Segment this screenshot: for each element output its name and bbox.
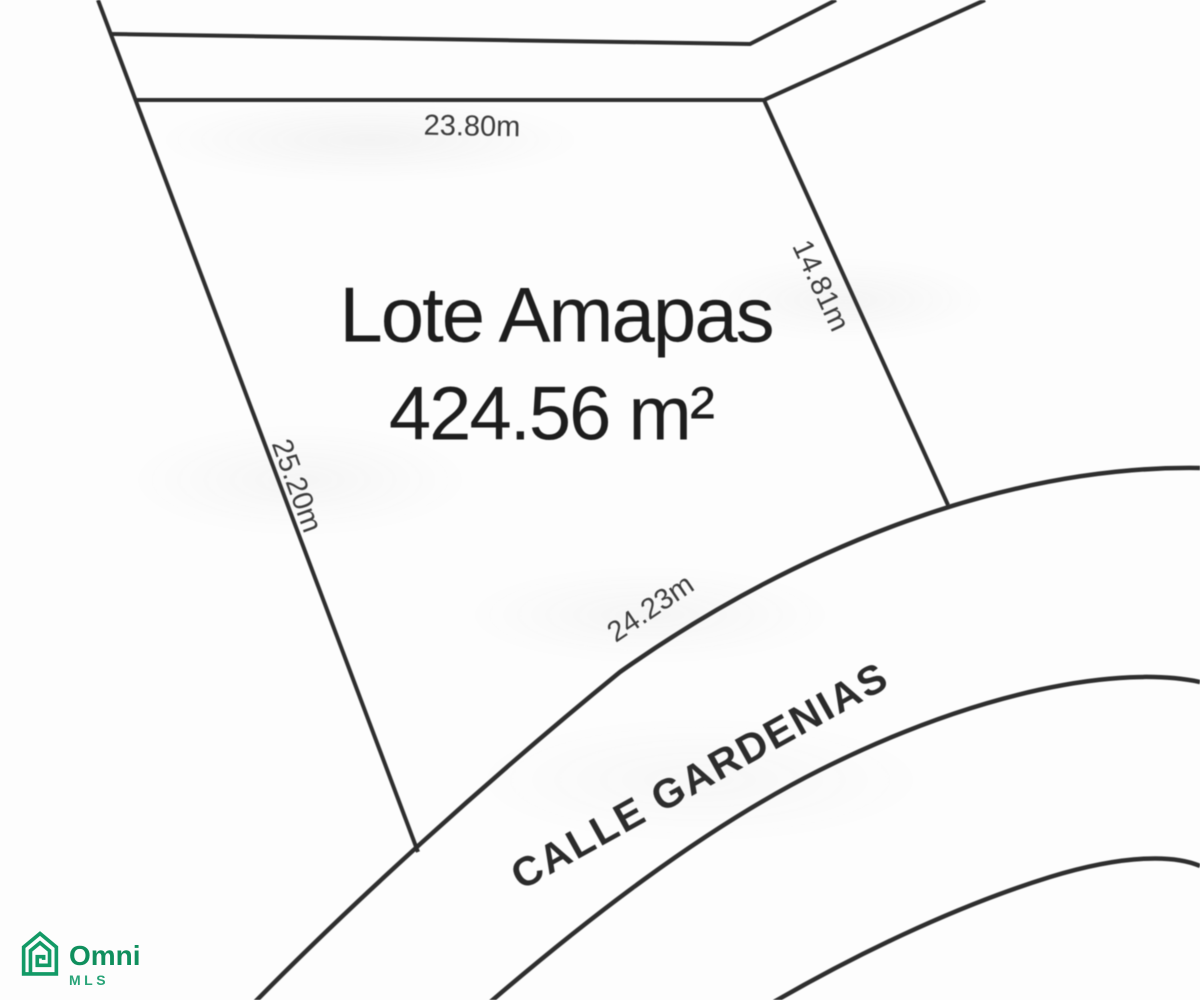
plat-map-image: Lote Amapas 424.56 m² 23.80m 14.81m 25.2… xyxy=(0,0,1200,1000)
lot-left-boundary-line xyxy=(98,0,418,852)
top-right-road-edge xyxy=(764,0,985,100)
logo-sub-text: MLS xyxy=(69,973,141,987)
omni-house-spiral-icon xyxy=(20,927,60,984)
logo-brand-text: Omni xyxy=(69,942,141,970)
lot-right-boundary-line xyxy=(764,100,948,505)
lot-name-label: Lote Amapas xyxy=(339,270,772,361)
street-outer-edge-curve xyxy=(772,858,1200,1000)
plat-drawing: Lote Amapas 424.56 m² 23.80m 14.81m 25.2… xyxy=(0,0,1200,1000)
dim-top-label: 23.80m xyxy=(423,110,520,145)
logo-text: Omni MLS xyxy=(69,942,141,987)
omni-mls-logo: Omni MLS xyxy=(20,927,141,987)
top-road-upper-edge xyxy=(111,0,836,44)
lot-area-label: 424.56 m² xyxy=(389,371,713,458)
